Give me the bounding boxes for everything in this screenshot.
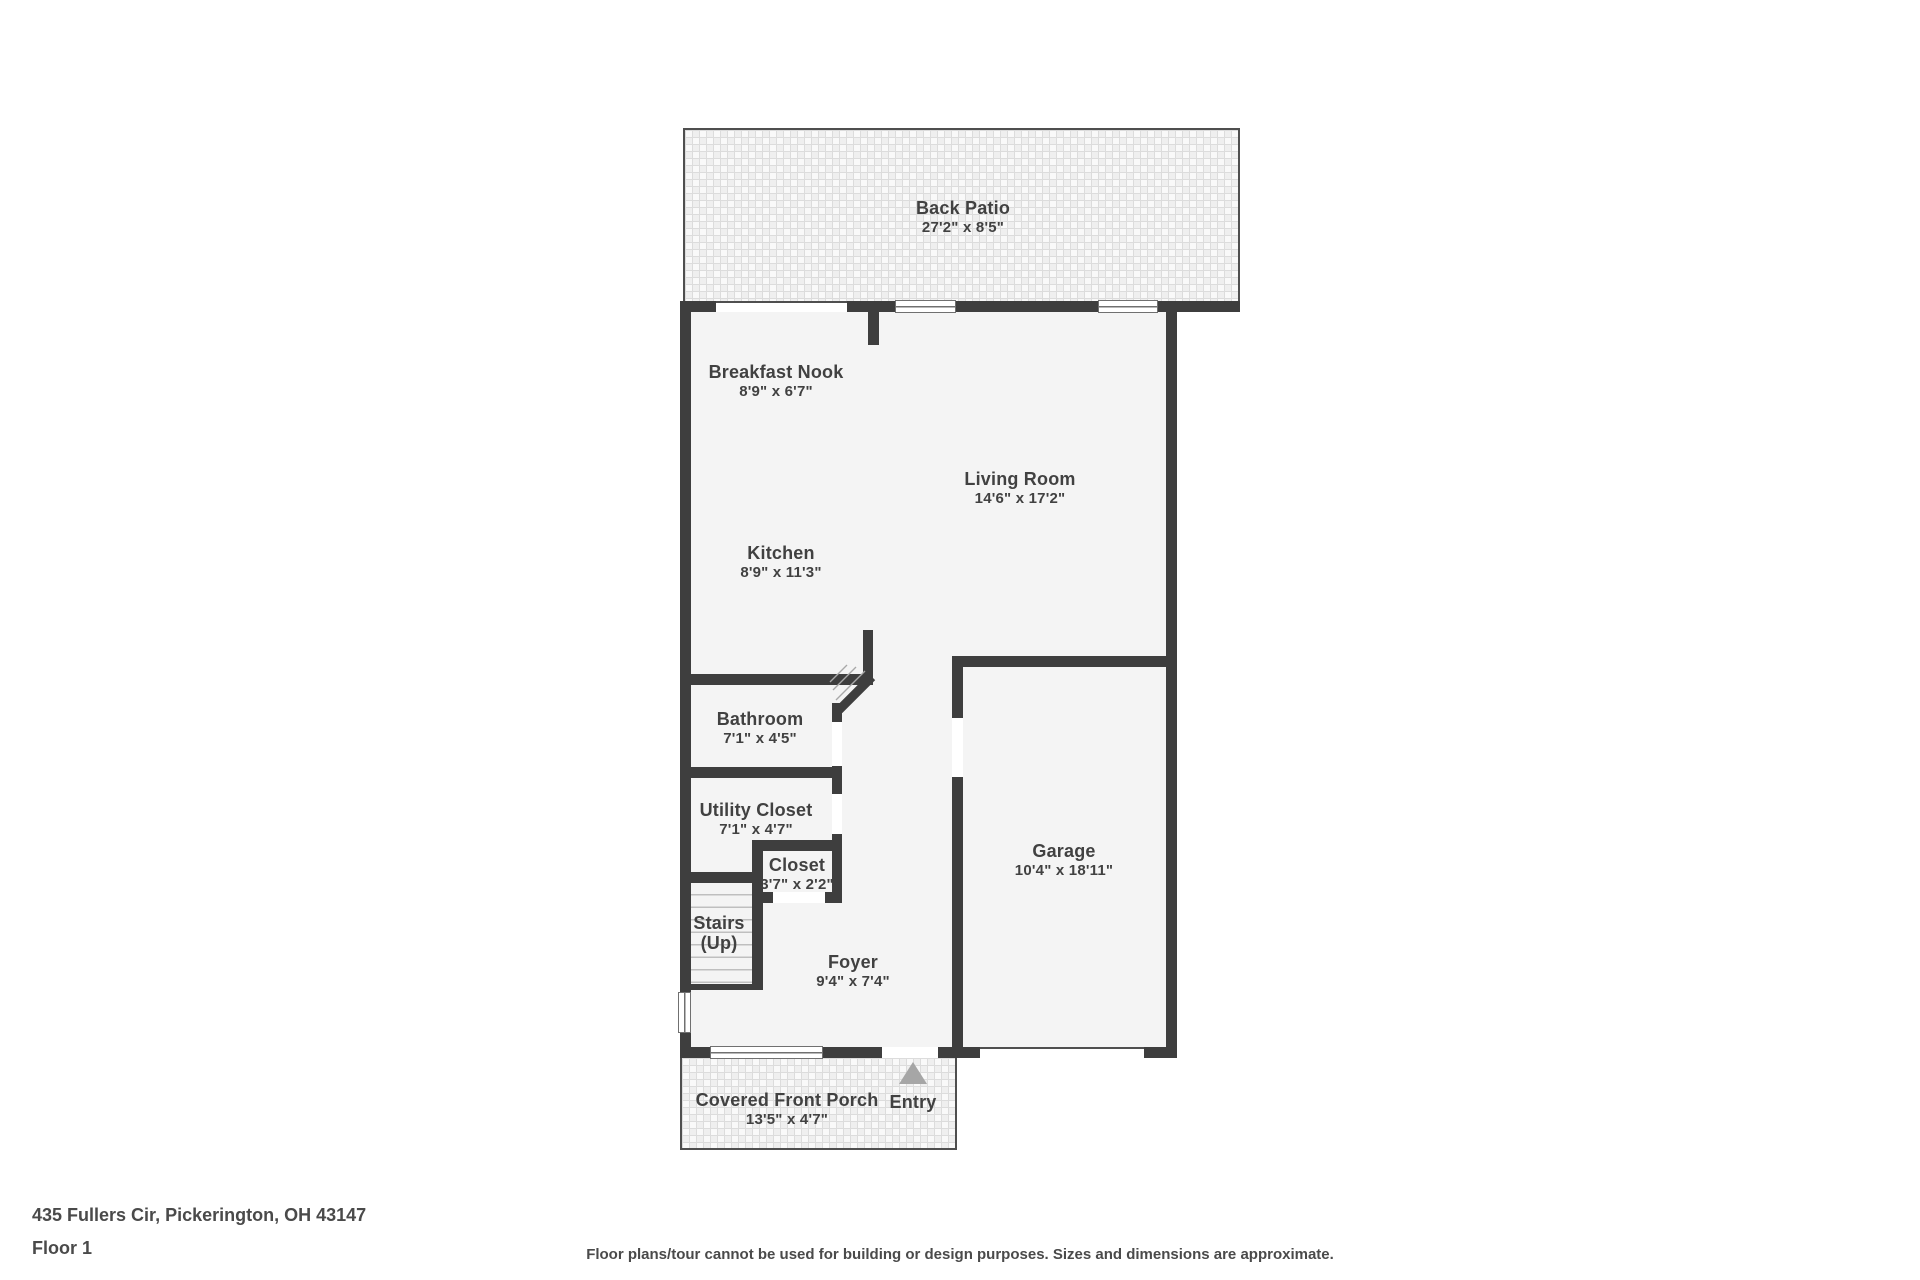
wall-stairs-bottom (680, 984, 763, 990)
room-label-bathroom: Bathroom 7'1" x 4'5" (717, 709, 804, 748)
floorplan-page: Back Patio 27'2" x 8'5" Breakfast Nook 8… (0, 0, 1920, 1280)
wall-right (1166, 301, 1177, 1058)
wall-segment-nook-divider (868, 301, 879, 345)
room-label-living-room: Living Room 14'6" x 17'2" (964, 469, 1075, 508)
wall-front-segment (680, 1047, 710, 1058)
wall-garage-top (952, 656, 1177, 667)
patio-slider-opening (716, 301, 847, 312)
wall-front-segment (823, 1047, 882, 1058)
window (895, 300, 956, 313)
disclaimer-text: Floor plans/tour cannot be used for buil… (586, 1246, 1334, 1263)
room-label-stairs: Stairs (Up) (693, 913, 744, 953)
room-label-kitchen: Kitchen 8'9" x 11'3" (740, 543, 821, 582)
wall-stairs-top (680, 872, 763, 883)
utility-door-opening (832, 794, 842, 834)
floor-number-text: Floor 1 (32, 1238, 92, 1259)
room-label-covered-front-porch: Covered Front Porch 13'5" x 4'7" (696, 1090, 879, 1129)
window (710, 1046, 823, 1059)
garage-door-opening (980, 1047, 1144, 1058)
entry-door-opening (882, 1047, 938, 1058)
bathroom-corner-door (826, 664, 878, 716)
wall-closet-top (752, 840, 842, 851)
garage-side-door-opening (952, 718, 963, 777)
room-label-breakfast-nook: Breakfast Nook 8'9" x 6'7" (709, 362, 844, 401)
entry-label: Entry (889, 1092, 936, 1112)
window (1098, 300, 1158, 313)
room-label-foyer: Foyer 9'4" x 7'4" (816, 952, 890, 991)
room-label-closet: Closet 3'7" x 2'2" (760, 855, 834, 894)
wall-utility-right (832, 778, 842, 794)
room-label-back-patio: Back Patio 27'2" x 8'5" (916, 198, 1010, 237)
wall-garage-left (952, 777, 963, 1058)
bathroom-door-opening (832, 722, 842, 766)
entry-arrow-icon (899, 1062, 927, 1084)
wall-bathroom-bottom (680, 767, 842, 778)
room-label-utility-closet: Utility Closet 7'1" x 4'7" (700, 800, 813, 839)
room-label-garage: Garage 10'4" x 18'11" (1015, 841, 1113, 880)
garage-front-wall-segment (963, 1047, 980, 1058)
address-text: 435 Fullers Cir, Pickerington, OH 43147 (32, 1205, 366, 1226)
wall-garage-left (952, 656, 963, 718)
garage-front-wall-segment (1144, 1047, 1177, 1058)
window (678, 992, 691, 1033)
